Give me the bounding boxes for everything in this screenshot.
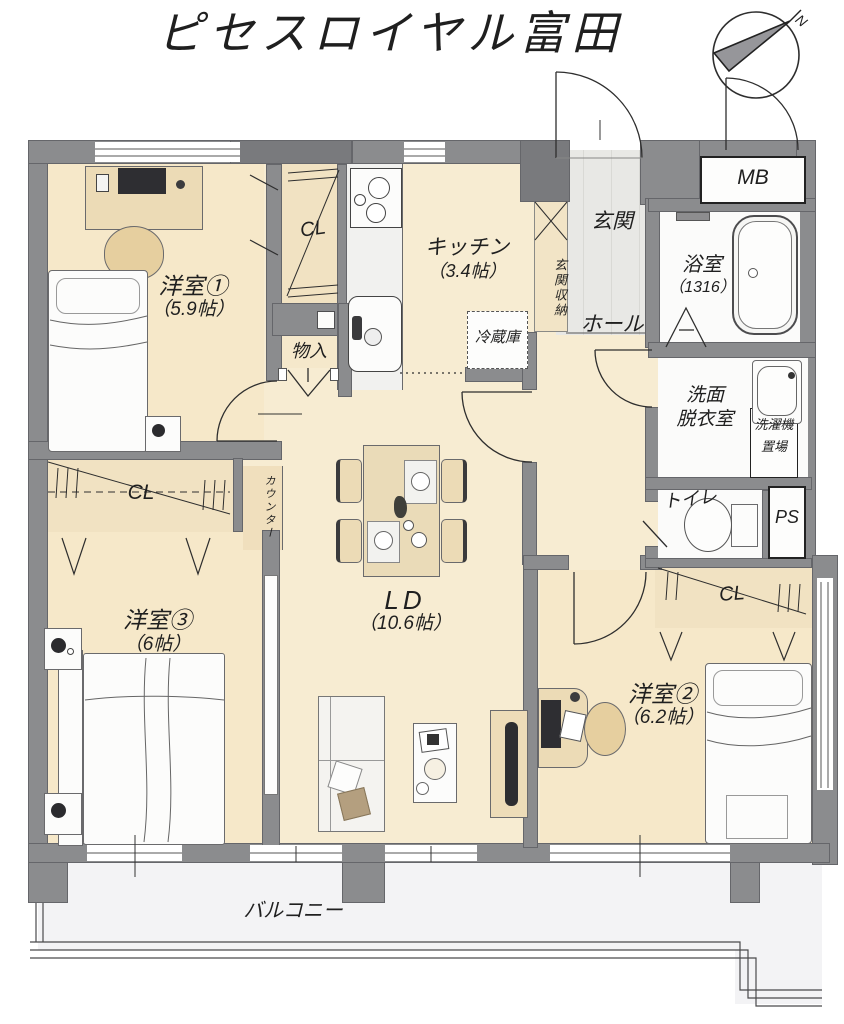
pier-left [28,862,68,903]
floor-balcony-right [735,948,822,1004]
compass-needle [714,21,790,71]
label-western1-name: 洋室① [118,274,268,299]
window-kitchen-top [404,142,445,162]
wall-top-cl [230,140,352,164]
bathtub-inner [738,221,792,329]
compass-north-label: N [793,11,812,30]
label-hall: ホール [566,313,658,336]
compass-icon: N [704,6,824,110]
coffee-cup-small [416,782,429,795]
plate-1 [411,472,430,491]
label-bath-size: （1316） [658,279,746,297]
label-western3-size: （6帖） [95,635,220,656]
lamp-western3-a [51,638,66,653]
plate-2 [374,531,393,550]
table-centerpiece [394,496,407,518]
desk-dot-western1 [176,180,185,189]
window-balcony-1 [87,845,182,861]
wall-hall-left-lower [522,462,537,565]
label-western1-size: （5.9帖） [118,300,268,321]
burner-3 [354,194,366,206]
label-living-size: （10.6帖） [330,614,480,635]
desk-item-western1 [96,174,109,192]
western3-sliding-door [264,575,278,795]
table-dish-small2 [411,532,427,548]
storeroom-jamb-left [278,368,287,381]
storeroom-jamb-right [330,368,339,381]
label-pipe-space: PS [768,508,806,528]
floor-balcony [38,862,822,950]
label-bath-name: 浴室 [660,254,744,276]
plan-title: ピセスロイヤル富田 [140,8,640,70]
pier-right [730,862,760,903]
wall-cl3-counter [233,458,243,532]
label-western2-name: 洋室② [595,682,730,707]
table-dish-small [403,520,414,531]
dot-western3-a [67,648,74,655]
label-western2-size: （6.2帖） [595,708,730,729]
burner-1 [368,177,390,199]
label-closet3: CL [108,481,174,504]
wall-left [28,140,48,902]
dining-chair-4 [441,519,467,563]
pc-western2 [541,700,561,748]
dining-chair-2 [336,519,362,563]
wall-toilet-bottom [645,558,812,568]
wall-bath-bottom [648,342,816,358]
sofa-back-line [330,697,331,831]
label-living-name: LD [340,586,470,615]
label-kitchen-size: （3.4帖） [400,262,534,282]
coffee-tray-item [427,734,439,745]
label-washroom-1: 洗面 [662,386,748,407]
label-counter: カウンター [251,464,275,550]
sofa-seat-line [319,760,384,761]
label-storeroom: 物入 [280,342,338,362]
label-kitchen-name: キッチン [400,236,534,259]
pier-mid [342,862,385,903]
toilet-tank [731,504,758,547]
wall-western2-top-a [523,555,569,570]
monitor-western1 [118,168,166,194]
desk-dot-western2 [570,692,580,702]
label-meter-box: MB [700,166,806,189]
floorplan-canvas: ピセスロイヤル富田 N [0,0,844,1024]
burner-2 [366,203,386,223]
label-entrance-storage: 玄関収納 [538,244,566,332]
bed-western3 [83,653,225,845]
label-entrance: 玄関 [570,210,654,233]
label-balcony: バルコニー [228,900,358,922]
window-balcony-2 [250,845,342,861]
washroom-faucet [788,372,795,379]
tv-screen [505,722,518,806]
window-western2-right [817,578,833,790]
window-balcony-3 [385,845,477,861]
bathtub-drain [748,268,758,278]
wall-block-genkan-left [520,140,570,202]
label-laundry-2: 置場 [750,440,798,454]
bed-western2-foot [726,795,788,839]
window-western1-top [95,142,240,162]
wall-niche [317,311,335,329]
coffee-cup [424,758,446,780]
label-refrigerator: 冷蔵庫 [467,330,528,347]
dining-chair-3 [441,459,467,503]
window-balcony-4 [550,845,730,861]
label-laundry-1: 洗濯機 [750,418,798,432]
wall-block-genkan-right [640,140,700,205]
lamp-western3-b [51,803,66,818]
label-western3-name: 洋室③ [95,608,220,633]
kitchen-drain [364,328,382,346]
label-closet2: CL [699,581,764,607]
dining-chair-1 [336,459,362,503]
lamp-western1 [152,424,165,437]
bath-faucet [676,212,710,221]
kitchen-faucet [352,316,362,340]
label-washroom-2: 脱衣室 [656,410,754,431]
